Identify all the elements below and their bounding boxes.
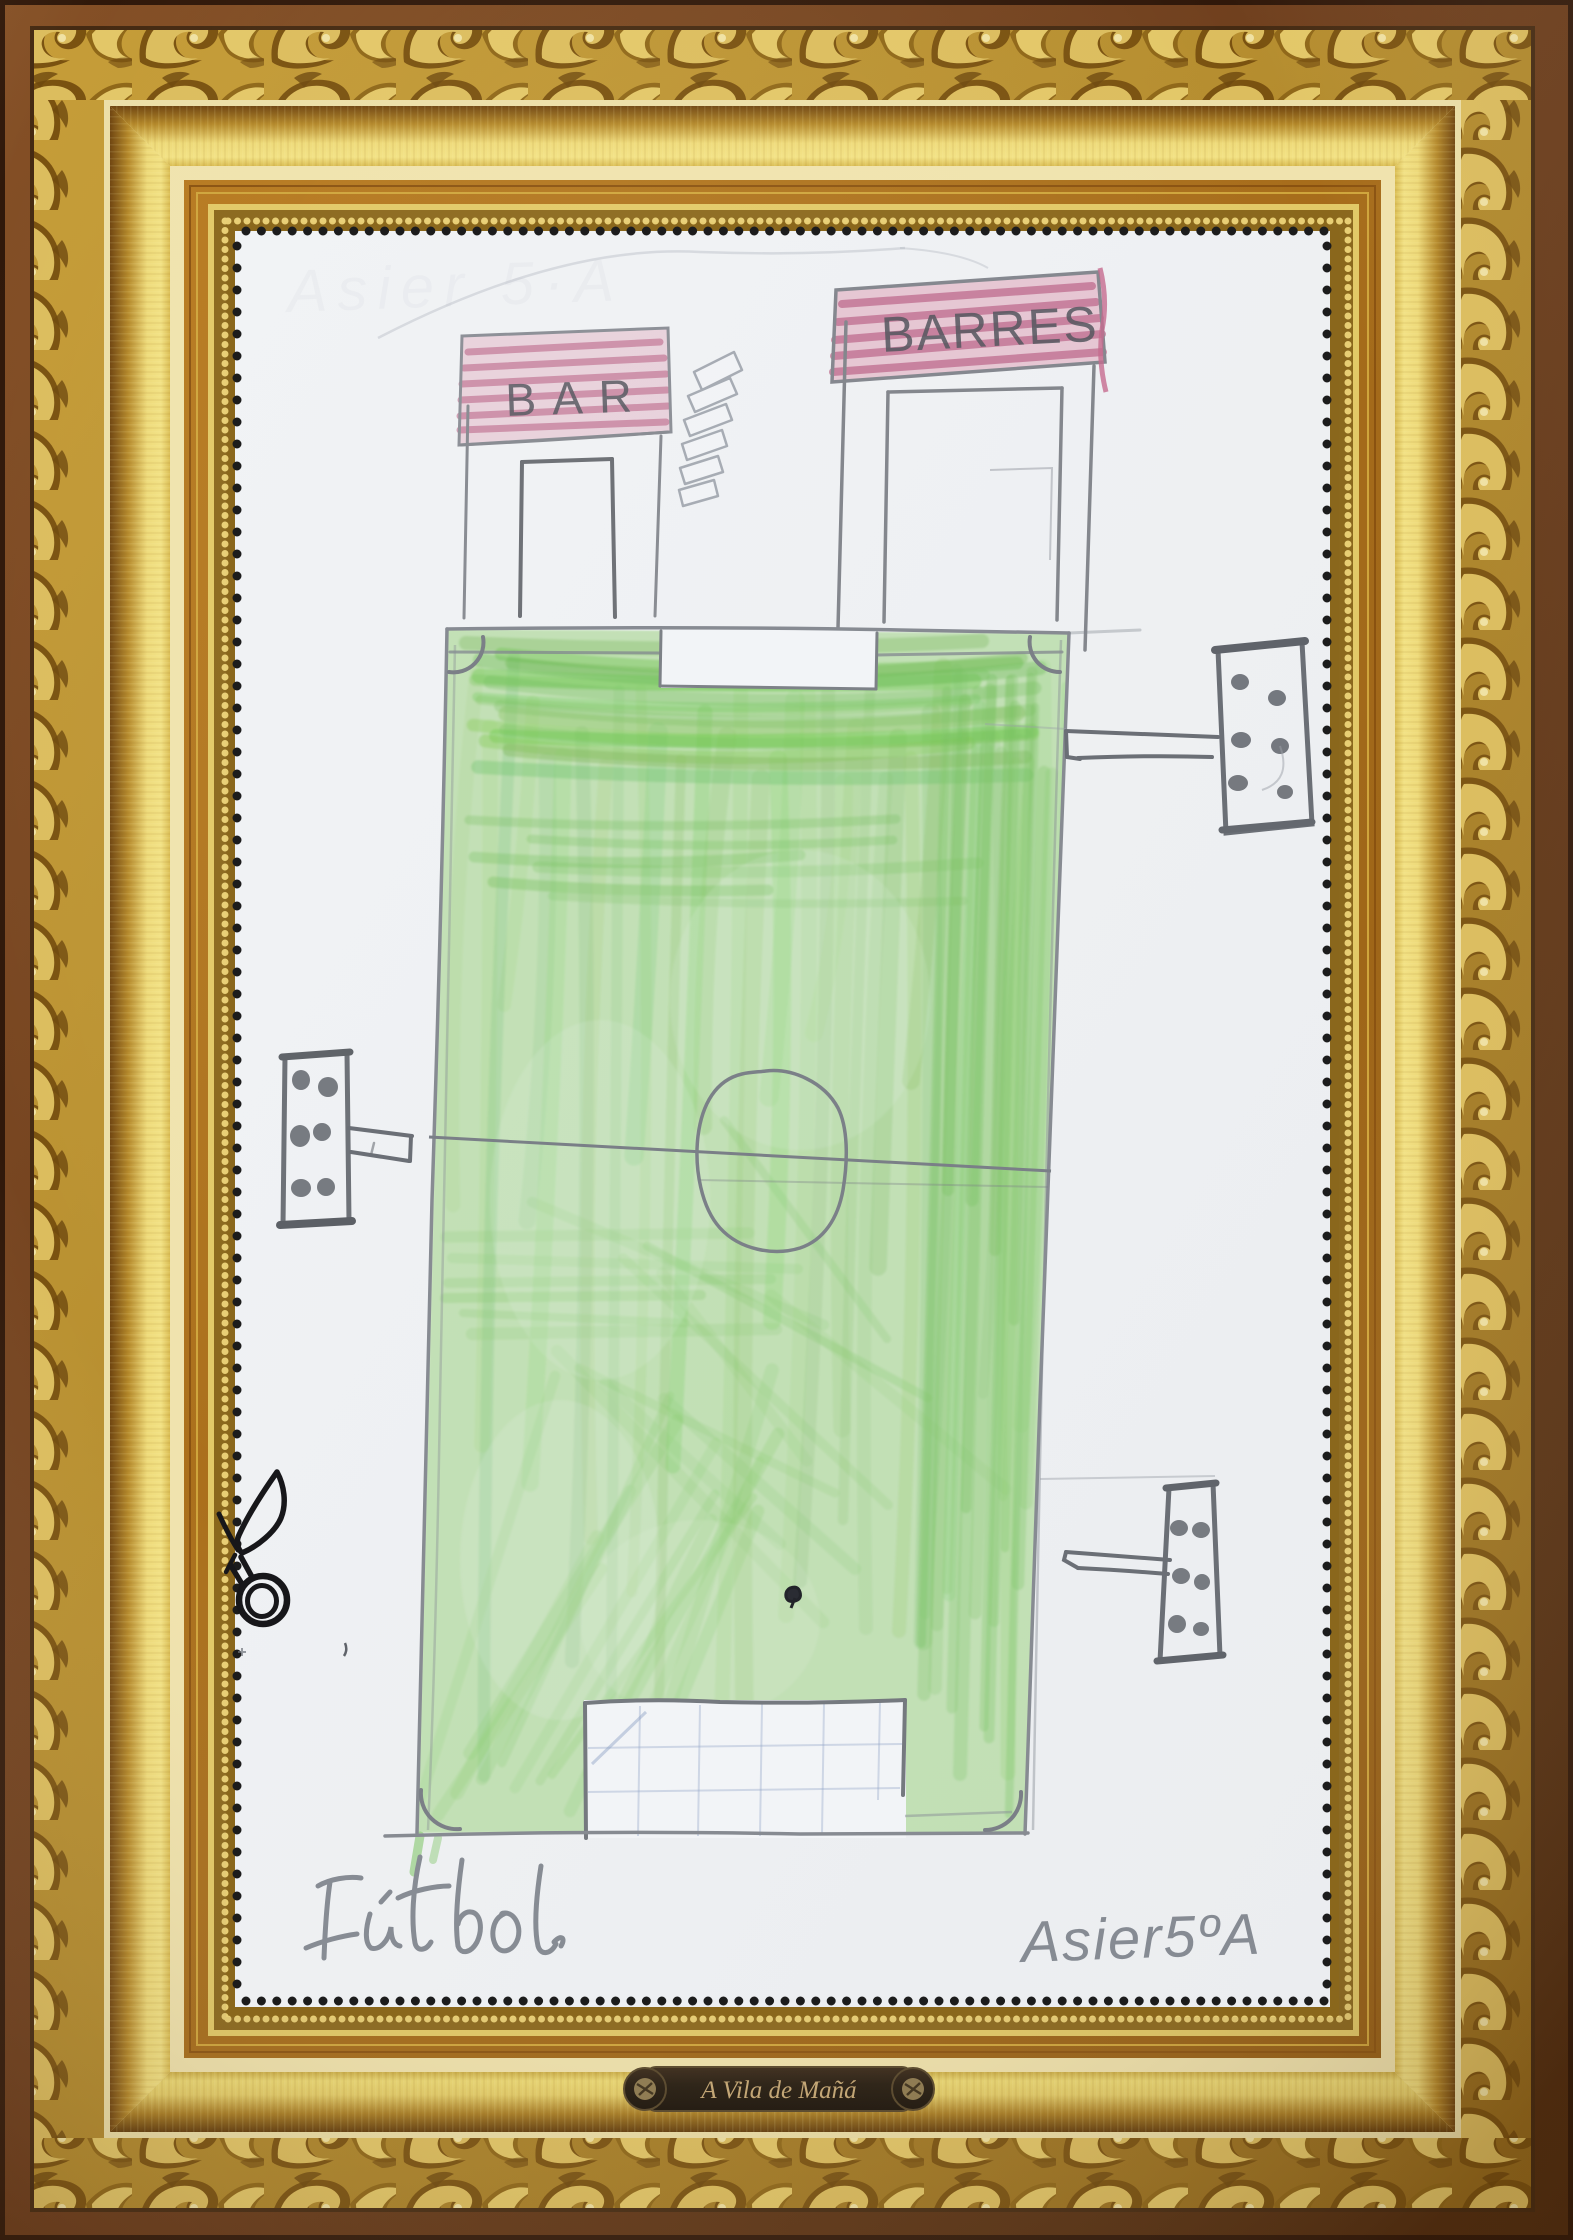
svg-text:BAR: BAR: [505, 369, 649, 426]
svg-text:Asier5ºA: Asier5ºA: [1017, 1902, 1262, 1975]
svg-text:Asier 5·A: Asier 5·A: [283, 246, 625, 325]
svg-text:BARRES: BARRES: [880, 296, 1100, 363]
